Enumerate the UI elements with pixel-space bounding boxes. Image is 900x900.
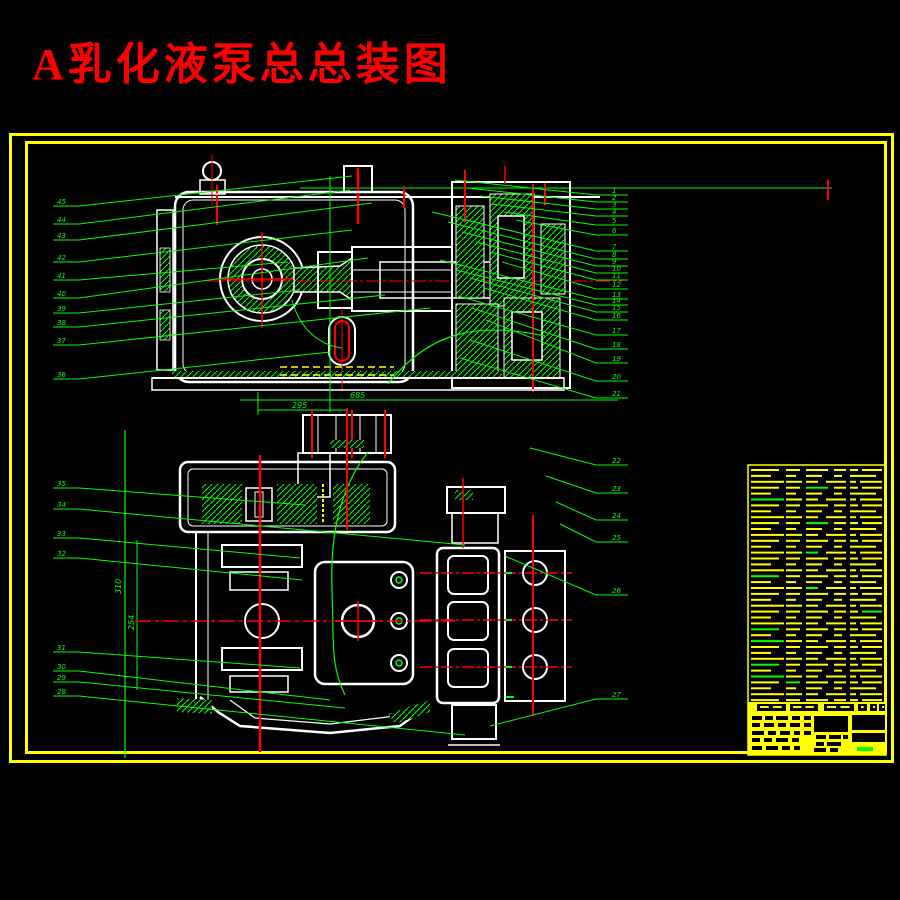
bom-row-text bbox=[751, 687, 771, 689]
bom-row-text bbox=[751, 634, 771, 636]
bom-row-text bbox=[862, 540, 882, 542]
part-callout-number: 32 bbox=[57, 550, 66, 558]
part-callout-number: 20 bbox=[612, 373, 621, 381]
callout-leader bbox=[53, 230, 352, 262]
bom-row-text bbox=[860, 676, 882, 678]
bom-row-text bbox=[862, 652, 876, 654]
title-block-cell bbox=[764, 723, 774, 727]
title-block-cell bbox=[804, 723, 811, 727]
bom-row-text bbox=[786, 558, 800, 560]
bom-header-text bbox=[882, 706, 884, 708]
title-block-cell bbox=[776, 716, 788, 720]
bom-row-text bbox=[834, 493, 842, 495]
bom-row-text bbox=[850, 493, 862, 495]
title-block-cell bbox=[829, 735, 841, 739]
bom-header-text bbox=[773, 706, 782, 708]
part-callout-number: 31 bbox=[57, 644, 66, 652]
bom-row-text bbox=[850, 617, 862, 619]
part-callout-number: 16 bbox=[612, 312, 621, 320]
bom-row-text bbox=[834, 681, 846, 683]
part-callout-number: 38 bbox=[57, 319, 66, 327]
bom-row-text bbox=[806, 658, 818, 660]
bom-row-text bbox=[751, 664, 779, 666]
part-callout-number: 5 bbox=[612, 217, 617, 225]
bom-row-text bbox=[806, 628, 828, 630]
title-block-cell bbox=[765, 716, 773, 720]
title-block-cell bbox=[780, 731, 790, 735]
bom-row-text bbox=[806, 575, 828, 577]
title-block-cell bbox=[852, 733, 885, 742]
cylinder-block bbox=[352, 247, 452, 311]
title-block-cell bbox=[827, 742, 841, 746]
title-block-cell bbox=[794, 731, 800, 735]
part-callout-number: 33 bbox=[57, 530, 66, 538]
title-block-cell bbox=[852, 715, 885, 730]
title-block-cell bbox=[792, 716, 800, 720]
bom-row-text bbox=[850, 563, 862, 565]
bom-row-text bbox=[786, 699, 800, 701]
bom-row-text bbox=[834, 487, 846, 489]
bom-row-text bbox=[850, 552, 856, 554]
dimension-label: 685 bbox=[350, 391, 365, 400]
bom-row-text bbox=[806, 687, 822, 689]
valve-slot bbox=[448, 556, 488, 594]
bom-row-text bbox=[751, 493, 771, 495]
bom-row-text bbox=[806, 617, 822, 619]
bom-row-text bbox=[806, 493, 822, 495]
bom-row-text bbox=[834, 540, 846, 542]
bom-row-text bbox=[806, 605, 818, 607]
bom-row-text bbox=[806, 528, 822, 530]
bom-header-text bbox=[841, 706, 850, 708]
bom-row-text bbox=[806, 469, 828, 471]
bom-row-text bbox=[862, 670, 876, 672]
bom-row-text bbox=[862, 546, 876, 548]
bom-row-text bbox=[786, 569, 802, 571]
bom-row-text bbox=[834, 546, 842, 548]
bom-row-text bbox=[826, 499, 846, 501]
parts-list-table bbox=[748, 465, 886, 755]
bom-row-text bbox=[860, 640, 882, 642]
bom-row-text bbox=[850, 670, 862, 672]
part-callout-number: 11 bbox=[612, 272, 621, 280]
bom-row-text bbox=[751, 640, 784, 642]
part-callout-number: 19 bbox=[612, 355, 621, 363]
bom-row-text bbox=[862, 504, 882, 506]
bom-row-text bbox=[806, 534, 818, 536]
bom-row-text bbox=[834, 593, 846, 595]
bom-row-text bbox=[751, 605, 784, 607]
bom-row-text bbox=[806, 487, 828, 489]
part-callout-number: 29 bbox=[57, 674, 66, 682]
front-section-view bbox=[135, 408, 572, 752]
bom-row-text bbox=[786, 534, 802, 536]
bom-row-text bbox=[806, 499, 818, 501]
bom-row-text bbox=[786, 605, 802, 607]
dimension-label: 310 bbox=[114, 579, 123, 594]
bom-header-text bbox=[805, 706, 813, 708]
bom-row-text bbox=[786, 563, 796, 565]
part-callout-number: 44 bbox=[57, 216, 66, 224]
bom-row-text bbox=[751, 569, 784, 571]
suction-inner bbox=[230, 700, 395, 724]
bom-row-text bbox=[834, 563, 842, 565]
bom-row-text bbox=[806, 558, 828, 560]
title-block-cell bbox=[790, 723, 800, 727]
bom-row-text bbox=[850, 658, 856, 660]
bom-row-text bbox=[751, 546, 771, 548]
bom-row-text bbox=[786, 528, 796, 530]
bom-row-text bbox=[850, 546, 862, 548]
bom-row-text bbox=[826, 693, 846, 695]
bom-row-text bbox=[751, 487, 779, 489]
bom-row-text bbox=[834, 581, 842, 583]
bom-row-text bbox=[806, 481, 818, 483]
bom-row-text bbox=[850, 481, 856, 483]
bom-row-text bbox=[826, 516, 846, 518]
bom-row-text bbox=[786, 670, 796, 672]
bom-row-text bbox=[826, 658, 846, 660]
title-block-cell bbox=[814, 716, 848, 732]
bom-row-text bbox=[860, 534, 882, 536]
title-block-cell bbox=[804, 716, 811, 720]
bom-row-text bbox=[806, 593, 828, 595]
bom-row-text bbox=[751, 593, 779, 595]
bom-row-text bbox=[806, 563, 822, 565]
bom-row-text bbox=[751, 469, 779, 471]
bom-row-text bbox=[751, 587, 784, 589]
part-callout-number: 30 bbox=[57, 663, 66, 671]
bom-row-text bbox=[850, 664, 858, 666]
bom-row-text bbox=[826, 676, 846, 678]
bom-row-text bbox=[862, 563, 876, 565]
bom-row-text bbox=[806, 693, 818, 695]
bom-row-text bbox=[850, 587, 856, 589]
bom-row-text bbox=[786, 634, 796, 636]
bom-row-text bbox=[862, 528, 876, 530]
bom-row-text bbox=[806, 646, 828, 648]
bom-row-text bbox=[834, 469, 846, 471]
bom-row-text bbox=[850, 646, 858, 648]
bom-row-text bbox=[834, 664, 846, 666]
bom-row-text bbox=[862, 699, 882, 701]
bom-row-text bbox=[751, 552, 784, 554]
bom-row-text bbox=[834, 634, 842, 636]
bom-row-text bbox=[786, 522, 800, 524]
title-block-cell bbox=[752, 738, 760, 742]
bom-row-text bbox=[860, 481, 882, 483]
part-callout-number: 42 bbox=[57, 254, 66, 262]
bom-row-text bbox=[751, 622, 784, 624]
bom-row-text bbox=[862, 687, 876, 689]
bom-row-text bbox=[806, 522, 828, 524]
title-block-cell bbox=[752, 746, 762, 750]
bom-row-text bbox=[806, 676, 818, 678]
bom-row-text bbox=[860, 569, 882, 571]
title-block-cell bbox=[766, 746, 778, 750]
part-callout-number: 4 bbox=[612, 208, 616, 216]
part-callout-number: 40 bbox=[57, 290, 66, 298]
bom-header-text bbox=[760, 706, 769, 708]
bom-row-text bbox=[862, 634, 876, 636]
bom-row-text bbox=[862, 558, 882, 560]
bom-row-text bbox=[751, 658, 784, 660]
part-callout-number: 43 bbox=[57, 232, 66, 240]
hatch-patch bbox=[541, 224, 565, 294]
bom-header-text bbox=[827, 706, 836, 708]
bom-row-text bbox=[786, 504, 800, 506]
bom-row-text bbox=[860, 516, 882, 518]
bom-row-text bbox=[786, 611, 800, 613]
bom-row-text bbox=[786, 581, 796, 583]
bolt bbox=[391, 655, 407, 671]
hatch-patch bbox=[456, 206, 484, 298]
hatch-patch bbox=[455, 490, 473, 500]
bom-row-text bbox=[786, 546, 796, 548]
bom-row-text bbox=[806, 540, 828, 542]
part-callout-number: 7 bbox=[612, 243, 617, 251]
bom-row-text bbox=[862, 593, 882, 595]
bom-row-text bbox=[786, 487, 800, 489]
bom-row-text bbox=[850, 611, 858, 613]
bom-row-text bbox=[786, 475, 796, 477]
bom-row-text bbox=[786, 599, 796, 601]
bom-header-text bbox=[873, 706, 875, 708]
bom-row-text bbox=[850, 499, 856, 501]
bom-row-text bbox=[834, 611, 846, 613]
bom-row-text bbox=[834, 558, 846, 560]
part-callout-number: 18 bbox=[612, 341, 621, 349]
callout-leader bbox=[490, 699, 628, 726]
bom-row-text bbox=[860, 499, 882, 501]
bom-row-text bbox=[834, 687, 842, 689]
bom-row-text bbox=[786, 628, 800, 630]
bom-row-text bbox=[850, 475, 862, 477]
bom-row-text bbox=[751, 670, 771, 672]
part-callout-number: 21 bbox=[612, 390, 621, 398]
bom-row-text bbox=[806, 599, 822, 601]
bom-row-text bbox=[751, 699, 779, 701]
bom-row-text bbox=[850, 699, 858, 701]
part-callout-number: 34 bbox=[57, 501, 66, 509]
title-block-cell bbox=[752, 723, 760, 727]
bom-row-text bbox=[860, 587, 882, 589]
bolt-mark bbox=[396, 660, 402, 666]
title-block-signature bbox=[857, 747, 873, 751]
part-callout-number: 12 bbox=[612, 281, 621, 289]
bom-row-text bbox=[786, 622, 802, 624]
dimension-label: 254 bbox=[127, 615, 136, 630]
bom-row-text bbox=[751, 617, 771, 619]
bom-row-text bbox=[850, 687, 862, 689]
bom-row-text bbox=[860, 552, 882, 554]
bom-row-text bbox=[826, 552, 846, 554]
bom-row-text bbox=[786, 658, 802, 660]
bom-row-text bbox=[806, 504, 828, 506]
bom-row-text bbox=[751, 558, 779, 560]
part-callout-number: 41 bbox=[57, 272, 66, 280]
bom-row-text bbox=[850, 504, 858, 506]
bom-row-text bbox=[850, 593, 858, 595]
part-callout-number: 39 bbox=[57, 305, 66, 313]
bom-row-text bbox=[850, 640, 856, 642]
bom-row-text bbox=[834, 599, 842, 601]
bom-row-text bbox=[862, 493, 876, 495]
title-block-cell bbox=[804, 731, 811, 735]
bom-row-text bbox=[751, 681, 779, 683]
bom-row-text bbox=[850, 634, 862, 636]
title-block-cell bbox=[752, 716, 762, 720]
bom-row-text bbox=[806, 640, 818, 642]
bom-row-text bbox=[850, 628, 858, 630]
bom-row-text bbox=[751, 540, 779, 542]
bom-row-text bbox=[850, 676, 856, 678]
bom-row-text bbox=[751, 475, 771, 477]
bom-row-text bbox=[806, 552, 818, 554]
part-callout-number: 6 bbox=[612, 227, 617, 235]
title-block-cell bbox=[816, 742, 824, 746]
bom-row-text bbox=[751, 510, 771, 512]
bom-row-text bbox=[834, 475, 842, 477]
bom-row-text bbox=[751, 599, 771, 601]
title-block-cell bbox=[782, 746, 790, 750]
bom-row-text bbox=[834, 504, 846, 506]
valve-slot bbox=[448, 649, 488, 687]
bom-row-text bbox=[751, 516, 784, 518]
valve-manifold bbox=[437, 548, 499, 703]
bom-row-text bbox=[751, 534, 784, 536]
bom-row-text bbox=[826, 640, 846, 642]
bom-row-text bbox=[834, 699, 846, 701]
bom-row-text bbox=[850, 622, 856, 624]
bom-row-text bbox=[834, 670, 842, 672]
bom-row-text bbox=[806, 622, 818, 624]
bom-row-text bbox=[862, 628, 882, 630]
bom-row-text bbox=[786, 681, 800, 683]
bom-row-text bbox=[786, 493, 796, 495]
bom-row-text bbox=[862, 681, 882, 683]
bom-row-text bbox=[850, 522, 858, 524]
bom-row-text bbox=[786, 575, 800, 577]
part-callout-number: 17 bbox=[612, 327, 621, 335]
bom-row-text bbox=[850, 681, 858, 683]
bom-row-text bbox=[806, 652, 822, 654]
bom-row-text bbox=[850, 569, 856, 571]
bom-row-text bbox=[751, 628, 779, 630]
bom-row-text bbox=[860, 605, 882, 607]
bom-row-text bbox=[806, 510, 822, 512]
bom-row-text bbox=[751, 528, 771, 530]
bom-row-text bbox=[806, 516, 818, 518]
bom-row-text bbox=[786, 646, 800, 648]
bom-row-text bbox=[850, 487, 858, 489]
bom-row-text bbox=[786, 510, 796, 512]
bom-row-text bbox=[834, 510, 842, 512]
bom-row-text bbox=[850, 469, 858, 471]
bom-row-text bbox=[850, 599, 862, 601]
bom-row-text bbox=[786, 617, 796, 619]
bom-row-text bbox=[806, 546, 822, 548]
bom-row-text bbox=[862, 611, 882, 613]
bom-row-text bbox=[850, 510, 862, 512]
bom-row-text bbox=[826, 587, 846, 589]
callout-leader bbox=[53, 538, 300, 558]
guide-block bbox=[222, 648, 302, 670]
bom-row-text bbox=[751, 646, 779, 648]
bom-row-text bbox=[834, 617, 842, 619]
part-callout-number: 25 bbox=[612, 534, 621, 542]
bom-row-text bbox=[751, 563, 771, 565]
bom-row-text bbox=[786, 552, 802, 554]
bom-row-text bbox=[806, 699, 828, 701]
bom-row-text bbox=[850, 528, 862, 530]
bom-row-text bbox=[786, 540, 800, 542]
assembly-drawing-canvas: 685 295 310 254 bbox=[0, 0, 900, 900]
title-block-cell bbox=[814, 748, 826, 752]
bom-rows bbox=[751, 469, 882, 701]
guide-block bbox=[222, 545, 302, 567]
bom-row-text bbox=[850, 516, 856, 518]
bom-row-text bbox=[862, 599, 876, 601]
bom-header-text bbox=[861, 706, 864, 708]
bom-row-text bbox=[834, 652, 842, 654]
discharge-connector bbox=[452, 513, 498, 543]
bom-row-text bbox=[850, 575, 858, 577]
bom-row-text bbox=[786, 593, 800, 595]
bom-row-text bbox=[860, 658, 882, 660]
bom-row-text bbox=[786, 652, 796, 654]
title-block-cell bbox=[794, 746, 800, 750]
bom-row-text bbox=[860, 622, 882, 624]
bom-row-text bbox=[850, 605, 856, 607]
bom-row-text bbox=[751, 581, 771, 583]
bom-row-text bbox=[806, 611, 828, 613]
bom-row-text bbox=[826, 605, 846, 607]
bom-row-text bbox=[862, 617, 876, 619]
bom-row-text bbox=[806, 634, 822, 636]
bom-row-text bbox=[806, 664, 828, 666]
part-callout-number: 24 bbox=[612, 512, 621, 520]
bom-row-text bbox=[850, 581, 862, 583]
title-block-cell bbox=[778, 723, 786, 727]
bom-row-text bbox=[850, 558, 858, 560]
bom-row-text bbox=[806, 587, 818, 589]
bom-row-text bbox=[786, 693, 802, 695]
part-callout-number: 22 bbox=[612, 457, 621, 465]
part-callout-number: 26 bbox=[612, 587, 621, 595]
hatch-patch bbox=[333, 484, 370, 524]
bom-row-text bbox=[786, 481, 802, 483]
title-block-cell bbox=[764, 738, 772, 742]
bom-row-text bbox=[862, 487, 882, 489]
bom-row-text bbox=[751, 499, 784, 501]
title-block-cell bbox=[792, 738, 799, 742]
part-callout-number: 23 bbox=[612, 485, 621, 493]
bom-row-text bbox=[850, 693, 856, 695]
bom-row-text bbox=[850, 652, 862, 654]
bom-row-text bbox=[786, 587, 802, 589]
bom-row-text bbox=[806, 581, 822, 583]
bom-row-text bbox=[751, 652, 771, 654]
bom-row-text bbox=[751, 676, 784, 678]
bolt bbox=[391, 572, 407, 588]
bom-row-text bbox=[862, 664, 882, 666]
bom-row-text bbox=[862, 522, 882, 524]
title-block-cell bbox=[843, 735, 848, 739]
title-block-cell bbox=[830, 748, 838, 752]
bom-row-text bbox=[834, 628, 846, 630]
dimension-label: 295 bbox=[292, 401, 307, 410]
